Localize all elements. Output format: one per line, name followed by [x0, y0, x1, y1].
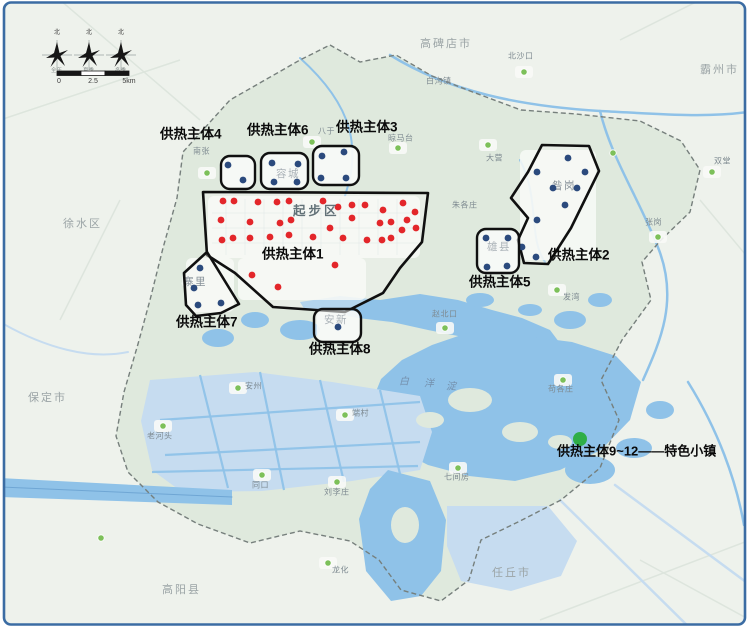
lake-island [416, 412, 444, 428]
water-blob [588, 293, 612, 307]
compass-group: 北全年北夏季北冬季 [42, 28, 136, 74]
map-layers: 容城寨里安新雄县昝岗供热主体1供热主体2供热主体3供热主体4供热主体5供热主体6… [0, 0, 750, 638]
heat-source-dot-blue [319, 153, 326, 160]
town-label: 七间房 [444, 472, 470, 482]
heat-source-dot-red [349, 215, 356, 222]
heat-source-dot-blue [484, 264, 491, 271]
scalebar-segment [57, 71, 81, 76]
city-label: 高碑店市 [420, 36, 472, 50]
lake-name-char: 洋 [424, 377, 435, 389]
town-label: 苟各庄 [548, 384, 574, 394]
town-label: 龙化 [332, 565, 349, 575]
heat-source-dot-blue [505, 235, 512, 242]
city-label: 任丘市 [492, 565, 531, 579]
heat-source-dot-red [310, 234, 317, 241]
heat-source-dot-blue [271, 179, 278, 186]
town-label: 安州 [245, 381, 262, 391]
heat-source-dot-red [230, 235, 237, 242]
heat-source-dot-red [413, 225, 420, 232]
town-dot [485, 142, 491, 148]
lake-name-char: 白 [399, 375, 410, 387]
zone-label: 供热主体3 [335, 119, 398, 135]
town-label: 端村 [352, 408, 369, 418]
scalebar-segment [105, 71, 129, 76]
heat-source-dot-red [364, 237, 371, 244]
zone-label: 供热主体4 [159, 126, 222, 142]
town-dot [610, 150, 616, 156]
town-dot [395, 145, 401, 151]
water-blob [554, 311, 586, 329]
town-label: 八于 [318, 127, 335, 136]
heat-source-dot-red [286, 232, 293, 239]
heat-source-dot-red [388, 235, 395, 242]
town-dot [709, 169, 715, 175]
heat-source-dot-red [277, 220, 284, 227]
town-dot [259, 472, 265, 478]
zone-label: 供热主体6 [246, 122, 309, 138]
heat-source-dot-red [380, 207, 387, 214]
zone-label: 供热主体7 [175, 314, 238, 330]
city-label: 保定市 [28, 390, 67, 404]
water-blob [565, 456, 615, 484]
town-label: 晾马台 [388, 133, 414, 143]
city-label: 高阳县 [162, 582, 201, 596]
legend-text: 供热主体9~12——特色小镇 [556, 444, 716, 459]
heat-source-dot-red [404, 217, 411, 224]
zone-label: 供热主体8 [308, 341, 371, 357]
town-label: 白沟镇 [426, 76, 452, 86]
town-label: 南张 [193, 146, 210, 156]
heat-source-dot-red [286, 198, 293, 205]
heat-source-dot-red [362, 202, 369, 209]
scalebar-tick: 5km [122, 78, 135, 85]
town-label: 老河头 [147, 431, 173, 441]
heat-source-dot-blue [240, 177, 247, 184]
scalebar-tick: 0 [57, 78, 61, 85]
heat-source-dot-blue [483, 235, 490, 242]
heat-source-dot-red [220, 198, 227, 205]
town-dot [560, 377, 566, 383]
town-dot [521, 69, 527, 75]
town-label: 刘李庄 [324, 487, 350, 497]
heat-source-dot-red [249, 272, 256, 279]
heat-source-dot-red [231, 198, 238, 205]
city-label: 徐水区 [63, 216, 102, 230]
water-blob [202, 329, 234, 347]
compass-north-char: 北 [54, 28, 60, 36]
heat-source-dot-blue [191, 285, 198, 292]
heat-source-dot-blue [574, 185, 581, 192]
heat-source-dot-red [267, 234, 274, 241]
heat-source-dot-blue [533, 254, 540, 261]
water-blob [646, 401, 674, 419]
town-label: 张岗 [645, 218, 662, 227]
heat-source-dot-red [377, 220, 384, 227]
heat-source-dot-red [218, 217, 225, 224]
heat-source-dot-red [275, 284, 282, 291]
heat-source-dot-blue [534, 217, 541, 224]
heat-source-dot-blue [343, 175, 350, 182]
city-label: 霸州市 [700, 62, 739, 76]
heat-source-dot-red [399, 227, 406, 234]
heat-source-dot-red [400, 200, 407, 207]
heat-source-dot-blue [225, 162, 232, 169]
heating-zone-zone8: 供热主体8 [308, 309, 371, 357]
town-dot [554, 287, 560, 293]
heat-source-dot-blue [218, 300, 225, 307]
town-label: 发湾 [563, 292, 580, 302]
town-dot [334, 479, 340, 485]
heat-source-dot-red [255, 199, 262, 206]
heat-source-dot-red [379, 237, 386, 244]
zone-label: 供热主体1 [261, 246, 324, 262]
heat-source-dot-blue [562, 202, 569, 209]
heat-source-dot-blue [565, 155, 572, 162]
town-dot [442, 325, 448, 331]
heat-source-dot-blue [294, 179, 301, 186]
heat-source-dot-blue [550, 185, 557, 192]
zone-outline [221, 156, 255, 189]
zone-label: 供热主体5 [468, 274, 531, 290]
heat-source-dot-red [412, 209, 419, 216]
lake-island [391, 507, 419, 543]
town-label: 双堂 [714, 156, 731, 166]
town-dot [309, 139, 315, 145]
town-dot [655, 234, 661, 240]
heat-source-dot-blue [197, 265, 204, 272]
heat-source-dot-red [327, 225, 334, 232]
heat-source-dot-blue [534, 169, 541, 176]
scalebar-tick: 2.5 [88, 78, 98, 85]
water-blob [241, 312, 269, 328]
heat-source-dot-red [247, 219, 254, 226]
heat-source-dot-blue [335, 324, 342, 331]
heat-source-dot-red [219, 237, 226, 244]
town-dot [160, 423, 166, 429]
heat-source-dot-blue [195, 302, 202, 309]
heat-source-dot-red [349, 202, 356, 209]
town-dot [204, 170, 210, 176]
planning-map-figure: 容城寨里安新雄县昝岗供热主体1供热主体2供热主体3供热主体4供热主体5供热主体6… [0, 0, 750, 638]
town-dot [235, 385, 241, 391]
zone-outline [477, 229, 519, 273]
compass-north-char: 北 [86, 28, 92, 36]
town-label: 同口 [252, 481, 269, 490]
heat-source-dot-blue [318, 175, 325, 182]
compass-north-char: 北 [118, 28, 124, 36]
town-label: 北沙口 [508, 52, 534, 61]
scalebar-segment [81, 71, 105, 76]
heat-source-dot-blue [269, 160, 276, 167]
water-blob [518, 304, 542, 316]
town-dot [325, 560, 331, 566]
district-label: 起步区 [292, 203, 340, 218]
map-canvas[interactable]: 容城寨里安新雄县昝岗供热主体1供热主体2供热主体3供热主体4供热主体5供热主体6… [0, 0, 750, 638]
heat-source-dot-blue [341, 149, 348, 156]
heat-source-dot-red [340, 235, 347, 242]
heat-source-dot-blue [295, 161, 302, 168]
town-dot [342, 412, 348, 418]
heat-source-dot-red [388, 219, 395, 226]
town-label: 赵北口 [432, 309, 458, 319]
lake-island [502, 422, 538, 442]
water-blob [466, 293, 494, 307]
heat-source-dot-blue [504, 263, 511, 270]
town-label: 朱各庄 [452, 200, 478, 210]
heat-source-dot-red [332, 262, 339, 269]
heat-source-dot-red [247, 235, 254, 242]
town-label: 大营 [486, 153, 503, 163]
town-dot [455, 465, 461, 471]
heat-source-dot-blue [582, 169, 589, 176]
zone-label: 供热主体2 [547, 247, 610, 263]
heat-source-dot-red [274, 199, 281, 206]
town-dot [98, 535, 104, 541]
zone-outline [261, 153, 308, 189]
